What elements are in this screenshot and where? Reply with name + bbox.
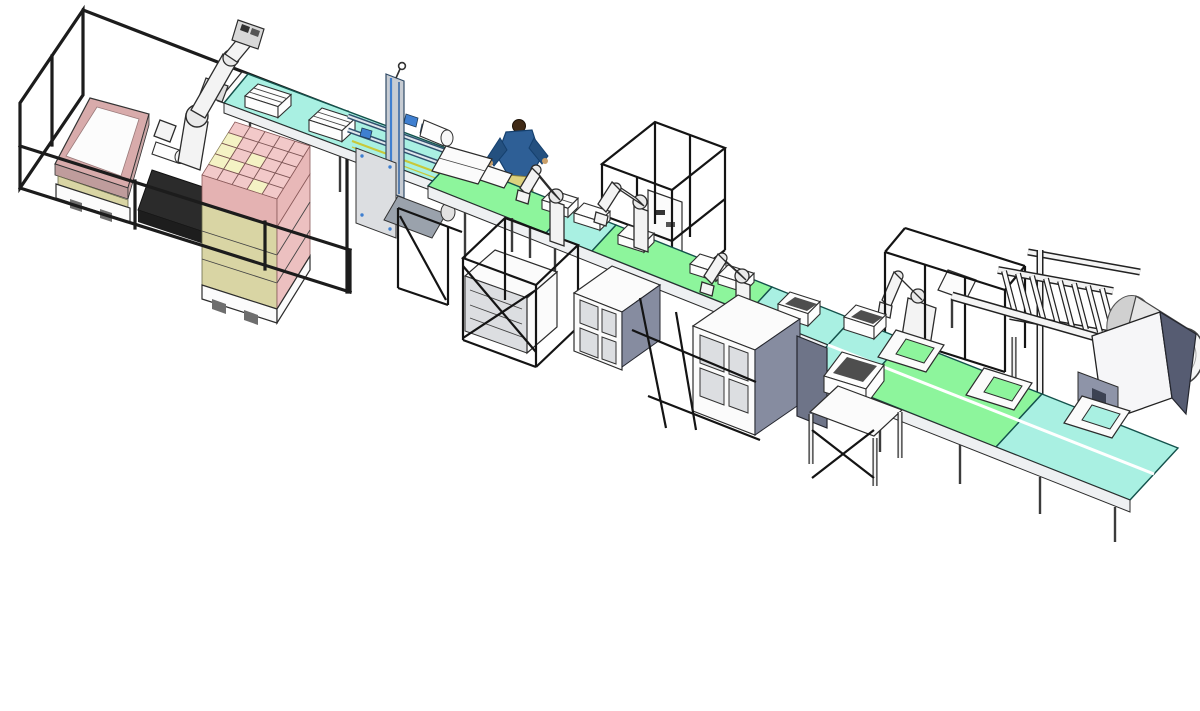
cabinet [574,266,660,370]
production-line-render [0,0,1200,711]
machine-side-panel [356,148,396,238]
cabinet [693,295,800,435]
cad-screenshot [0,0,1200,711]
loaded-pallet-stack [202,122,310,325]
